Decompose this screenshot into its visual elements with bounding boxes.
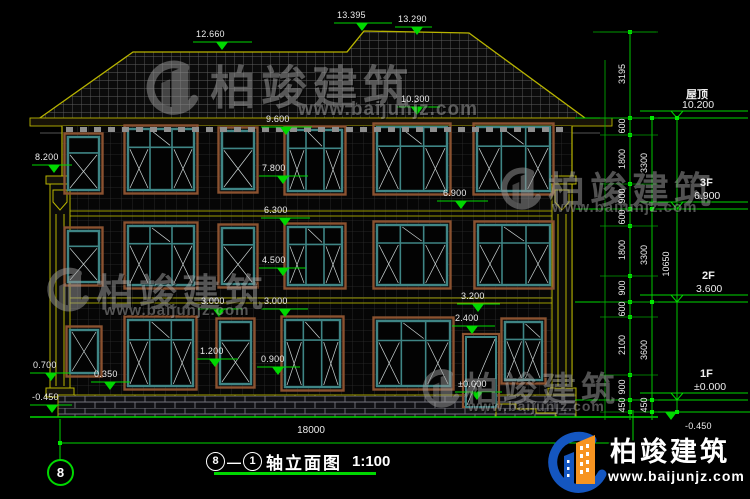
floor-elev-1f: ±0.000 (694, 381, 726, 393)
brand-logo-icon (540, 424, 608, 494)
elev-marker-label: 13.290 (398, 14, 427, 25)
elev-marker-label: 3.000 (264, 296, 288, 307)
watermark-url: www.baijunjz.com (468, 398, 605, 414)
elev-marker-label: 10.300 (401, 94, 430, 105)
window (125, 126, 198, 194)
floor-elev-2f: 3.600 (696, 283, 722, 295)
watermark-logo-icon (140, 56, 202, 118)
elev-marker-label: -0.450 (32, 392, 59, 403)
dentil (500, 127, 507, 132)
window (374, 222, 451, 289)
dentil (416, 127, 423, 132)
window (65, 134, 103, 194)
elev-marker-label: 0.350 (94, 369, 118, 380)
dim-label: 3600 (639, 328, 649, 372)
dentil (248, 127, 255, 132)
elev-marker-label: -0.450 (685, 421, 712, 432)
dim-label: 2100 (617, 323, 627, 367)
elev-marker-triangle (46, 405, 58, 413)
dim-node (650, 300, 654, 304)
dentil (234, 127, 241, 132)
dentil (80, 127, 87, 132)
title-scale: 1:100 (352, 453, 390, 470)
elevation-drawing-canvas: 柏竣建筑 www.baijunjz.com 柏竣建筑 www.baijunjz.… (0, 0, 750, 499)
elev-marker-label: 8.200 (35, 152, 59, 163)
floor-label-2f: 2F (702, 270, 715, 282)
elev-marker-label: 0.700 (33, 360, 57, 371)
watermark-logo-icon (418, 366, 462, 410)
dim-label: 3195 (617, 52, 627, 96)
elev-marker-label: 9.600 (266, 114, 290, 125)
overall-width-dim: 18000 (288, 425, 334, 436)
elev-marker-label: ±0.000 (458, 379, 487, 390)
dentil (472, 127, 479, 132)
dentil (178, 127, 185, 132)
elev-marker-label: 3.000 (201, 296, 225, 307)
dentil (374, 127, 381, 132)
dentil (192, 127, 199, 132)
dim-label: 3300 (639, 141, 649, 185)
watermark-left: 柏竣建筑 www.baijunjz.com (42, 262, 342, 322)
logo-brand-text: 柏竣建筑 (610, 430, 730, 469)
window (282, 317, 344, 391)
title-underline (214, 472, 376, 475)
window (125, 317, 197, 390)
elev-marker-label: 6.300 (264, 205, 288, 216)
dentil (402, 127, 409, 132)
dentil (528, 127, 535, 132)
dentil (150, 127, 157, 132)
floor-label-3f: 3F (700, 177, 713, 189)
elev-marker-label: 4.500 (262, 255, 286, 266)
dim-node (675, 116, 679, 120)
dentil (304, 127, 311, 132)
elev-marker-label: 2.400 (455, 313, 479, 324)
dentil (108, 127, 115, 132)
dentil (388, 127, 395, 132)
dentil (122, 127, 129, 132)
floor-elev-3f: 6.900 (694, 190, 720, 202)
dentil (486, 127, 493, 132)
elev-marker-label: 3.200 (461, 291, 485, 302)
window (374, 124, 451, 195)
dentil (220, 127, 227, 132)
dentil (444, 127, 451, 132)
watermark-url: www.baijunjz.com (298, 99, 478, 121)
dentil (262, 127, 269, 132)
elev-marker-label: 12.660 (196, 29, 225, 40)
logo-url-text: www.baijunjz.com (608, 468, 745, 484)
elev-marker-label: 7.800 (262, 163, 286, 174)
dentil (430, 127, 437, 132)
dentil (458, 127, 465, 132)
dentil (164, 127, 171, 132)
floor-label-1f: 1F (700, 368, 713, 380)
dentil (346, 127, 353, 132)
floor-elev-roof: 10.200 (682, 99, 714, 111)
axis-grid-bubble: 8 (47, 459, 74, 486)
elev-marker-label: 13.395 (337, 10, 366, 21)
title-text: 轴立面图 (266, 449, 342, 474)
elev-marker-triangle (356, 23, 368, 31)
dim-label: 450 (617, 383, 627, 427)
dentil (514, 127, 521, 132)
dim-label: 450 (639, 383, 649, 427)
dentil (542, 127, 549, 132)
dentil (318, 127, 325, 132)
elev-marker-label: 0.900 (261, 354, 285, 365)
dim-node (675, 410, 679, 414)
watermark-top: 柏竣建筑 www.baijunjz.com (140, 52, 550, 124)
drawing-title: 8 — 1 轴立面图 1:100 (206, 449, 390, 474)
title-axis-a: 8 (206, 452, 225, 471)
dentil (66, 127, 73, 132)
elev-marker-label: 6.900 (443, 188, 467, 199)
dim-label: 3300 (639, 233, 649, 277)
title-axis-b: 1 (243, 452, 262, 471)
brand-logo: 柏竣建筑 www.baijunjz.com (540, 424, 750, 498)
elev-marker-triangle (216, 42, 228, 50)
dim-node (650, 116, 654, 120)
elev-marker-triangle (48, 165, 60, 173)
window (475, 222, 554, 289)
window (219, 128, 258, 193)
title-dash: — (227, 454, 241, 470)
dentil (136, 127, 143, 132)
watermark-logo-icon (496, 164, 544, 212)
window (285, 127, 346, 195)
dentil (206, 127, 213, 132)
dim-node (58, 441, 62, 445)
dim-label: 10650 (661, 242, 671, 286)
dentil (360, 127, 367, 132)
dentil (332, 127, 339, 132)
elev-marker-label: 1.200 (200, 346, 224, 357)
watermark-url: www.baijunjz.com (104, 302, 249, 319)
dentil (556, 127, 563, 132)
watermark-logo-icon (42, 264, 92, 314)
dentil (94, 127, 101, 132)
